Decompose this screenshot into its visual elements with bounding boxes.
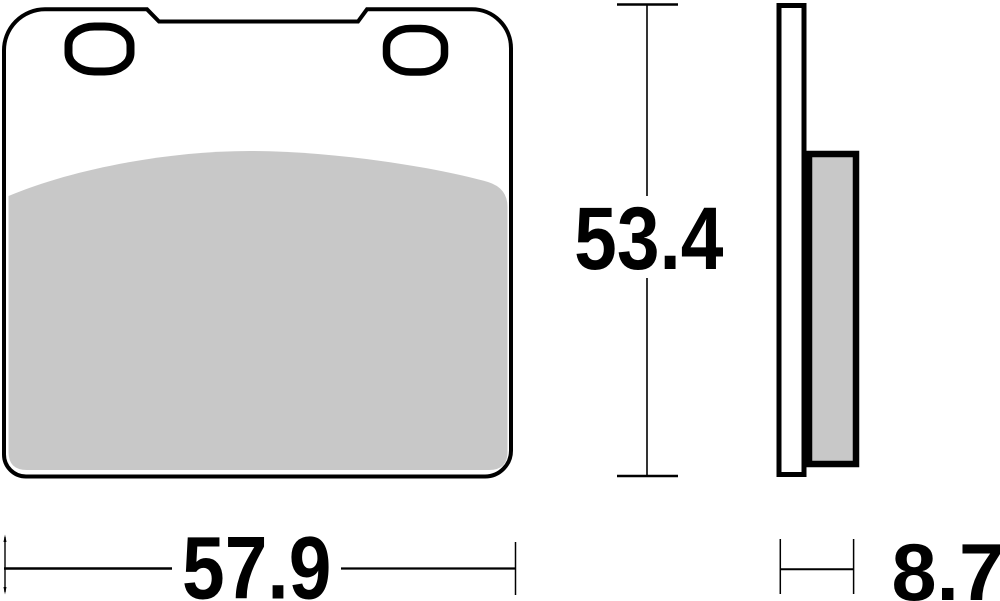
svg-text:57.9: 57.9 [182, 518, 331, 601]
svg-text:53.4: 53.4 [574, 189, 723, 289]
svg-text:8.7: 8.7 [891, 528, 1000, 601]
